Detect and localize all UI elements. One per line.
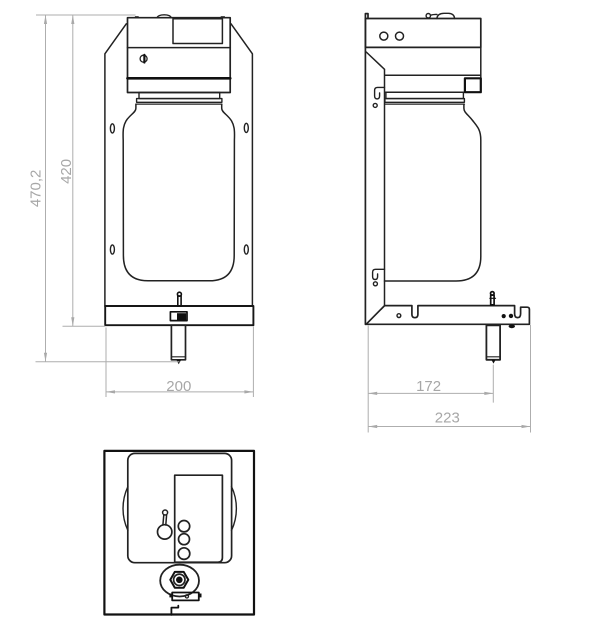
svg-text:172: 172 [416,378,441,395]
svg-text:200: 200 [166,378,191,395]
svg-text:223: 223 [435,409,460,426]
svg-text:470,2: 470,2 [27,170,44,208]
svg-text:420: 420 [58,159,75,184]
